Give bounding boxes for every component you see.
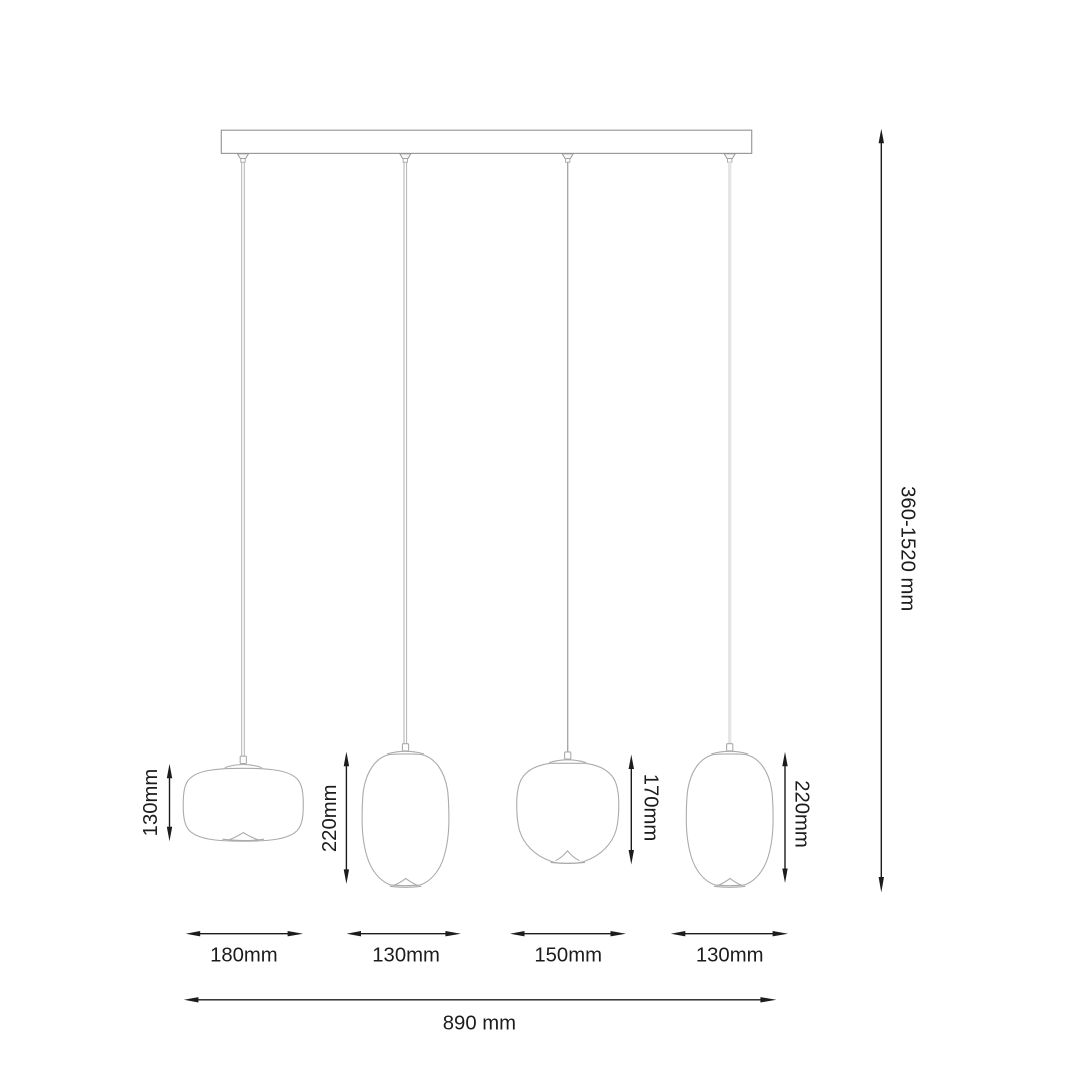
svg-text:180mm: 180mm <box>210 945 278 967</box>
svg-text:150mm: 150mm <box>534 945 602 967</box>
svg-text:170mm: 170mm <box>640 774 662 842</box>
svg-text:130mm: 130mm <box>696 945 764 967</box>
svg-text:130mm: 130mm <box>140 769 162 837</box>
svg-text:220mm: 220mm <box>791 780 813 848</box>
svg-text:130mm: 130mm <box>372 945 440 967</box>
svg-text:360-1520 mm: 360-1520 mm <box>897 486 919 611</box>
svg-text:220mm: 220mm <box>319 784 341 852</box>
svg-text:890 mm: 890 mm <box>443 1013 516 1035</box>
